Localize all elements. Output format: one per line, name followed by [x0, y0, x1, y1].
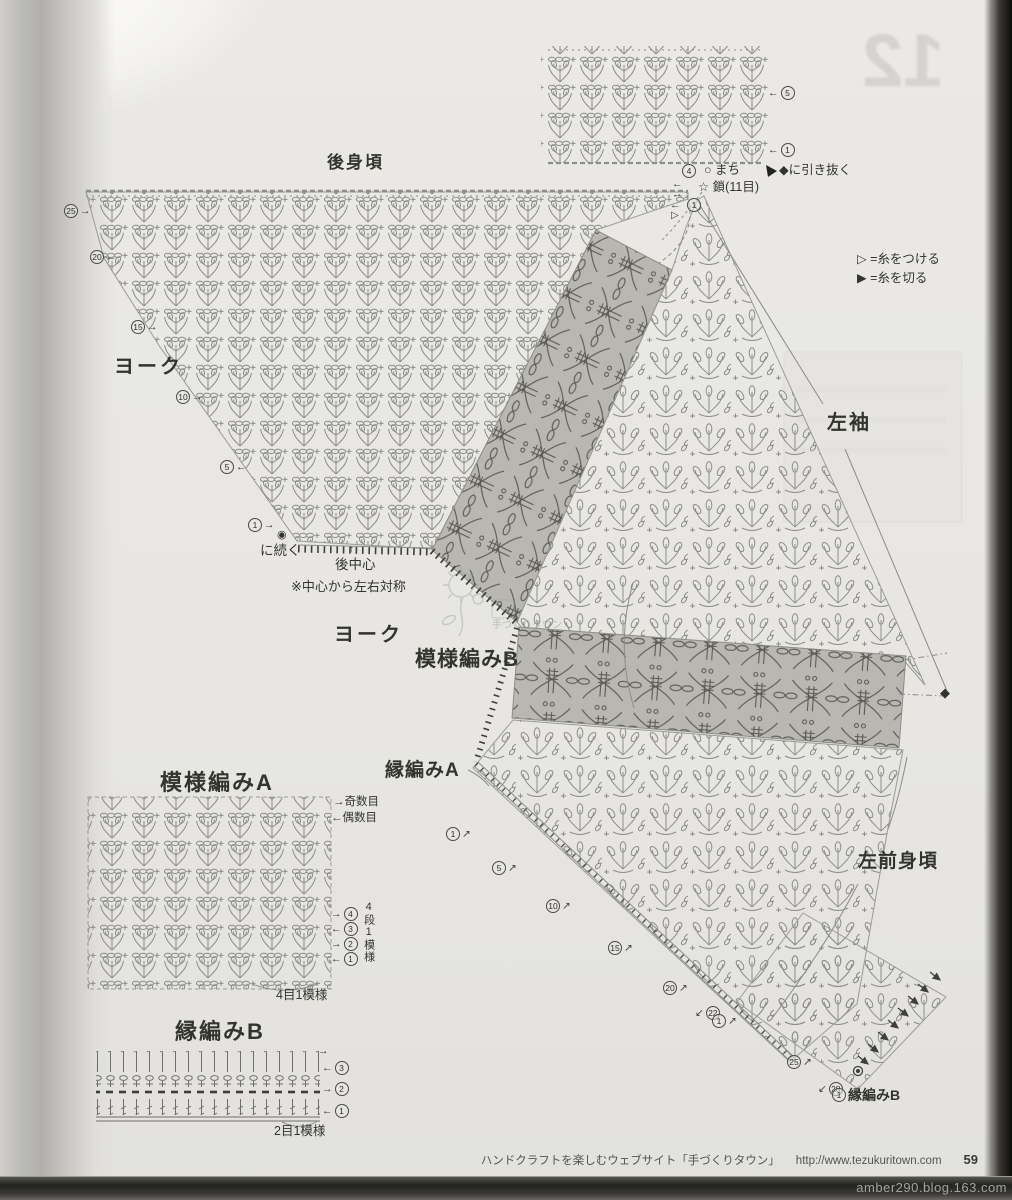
row-marker-left-5: 5← — [220, 460, 247, 474]
attach-yarn-marker: ▷ — [671, 210, 679, 222]
symmetry-note: ※中心から左右対称 — [291, 580, 406, 595]
even-rows-note: ←偶数目 — [331, 812, 377, 825]
row-marker-left-25: 25→ — [64, 204, 91, 218]
edge-b-marker-2: →2 — [322, 1082, 349, 1096]
pattern-a-marker-2: →2 — [331, 937, 358, 951]
edge-a-title: 縁編みA — [385, 760, 460, 782]
front-edge-marker-25: 25↗ — [787, 1055, 812, 1069]
edge-b-marker-3: ←3 — [322, 1061, 349, 1075]
row-marker-left-15: 15→ — [131, 320, 158, 334]
odd-rows-note: →奇数目 — [333, 796, 379, 809]
repeat-4rows-note: 4段1模様 — [362, 901, 375, 963]
page-number: 59 — [964, 1152, 978, 1167]
pattern-b-title: 模様編みB — [415, 648, 519, 672]
back-center-note: 後中心 — [335, 557, 376, 573]
bleed-through-number: 12 — [862, 18, 944, 103]
underarm-arrow-3: ← — [670, 199, 681, 211]
front-edge-marker-r1: 1↗ — [712, 1014, 737, 1028]
slip-to-diamond-note: ◆に引き抜く — [779, 163, 851, 177]
row-marker-top-1: ←1 — [768, 143, 795, 157]
front-edge-marker-1: 1↗ — [446, 827, 471, 841]
row-marker-left-20: 20← — [90, 250, 117, 264]
row-marker-left-1: 1→ — [248, 518, 275, 532]
back-center-arrow: ↑ — [349, 544, 354, 556]
edge-b-marker-top: → — [318, 1045, 329, 1057]
continue-symbol: ◉ — [277, 529, 287, 542]
machi-note: ○ まち — [704, 163, 740, 177]
pattern-a-marker-4: →4 — [331, 907, 358, 921]
legend-cut-yarn: ▶ =糸を切る — [857, 271, 927, 285]
blog-watermark: amber290.blog.163.com — [856, 1180, 1007, 1195]
cut-yarn-flag — [766, 165, 777, 177]
continue-to-note: に続く — [260, 543, 301, 559]
page-footer: ハンドクラフトを楽しむウェブサイト「手づくりタウン」 http://www.te… — [481, 1152, 978, 1168]
page-right-edge — [984, 0, 1012, 1200]
edge-b-marker-1: ←1 — [322, 1104, 349, 1118]
repeat-2sts-note: 2目1模様 — [274, 1124, 325, 1138]
edge-b-row1-label: 1 縁編みB — [832, 1085, 900, 1105]
yoke-title-lower: ヨーク — [334, 624, 403, 647]
front-edge-marker-20: 20↗ — [663, 981, 688, 995]
pattern-a-marker-1: ←1 — [331, 952, 358, 966]
pattern-a-marker-3: ←3 — [331, 922, 358, 936]
pattern-a-title: 模様編みA — [160, 770, 274, 795]
front-edge-marker-10: 10↗ — [546, 899, 571, 913]
chain11-note: ☆ 鎖(11目) — [698, 180, 759, 194]
crochet-chart-canvas — [0, 0, 1012, 1200]
left-sleeve-title: 左袖 — [827, 412, 871, 435]
diamond-join-symbol: ◆ — [940, 686, 950, 701]
edge-b-chart — [96, 1051, 320, 1121]
scanned-pattern-page: 後身頃 ヨーク ヨーク 左袖 模様編みB 縁編みA 模様編みA 縁編みB 左前身… — [0, 0, 1012, 1200]
back-body-title: 後身頃 — [327, 153, 384, 173]
row-marker-left-10: 10→ — [176, 390, 203, 404]
watermark-logo-text: 手づくりタウン — [492, 620, 562, 632]
footer-url: http://www.tezukuritown.com — [796, 1155, 942, 1167]
row-marker-underarm-4: 4 — [682, 164, 696, 178]
row-marker-underarm-1: 1 — [687, 198, 701, 212]
yoke-title-upper: ヨーク — [114, 356, 183, 379]
footer-site-text: ハンドクラフトを楽しむウェブサイト「手づくりタウン」 — [481, 1152, 780, 1168]
edge-b-title: 縁編みB — [175, 1019, 265, 1044]
front-edge-marker-5: 5↗ — [492, 861, 517, 875]
front-edge-marker-15: 15↗ — [608, 941, 633, 955]
repeat-4sts-note: 4目1模様 — [276, 988, 327, 1002]
pattern-a-chart — [88, 797, 331, 989]
row-marker-top-5: ←5 — [768, 86, 795, 100]
legend-attach-yarn: ▷ =糸をつける — [857, 252, 940, 266]
sleeve-top-chart — [541, 46, 768, 163]
left-front-title: 左前身頃 — [858, 851, 938, 873]
